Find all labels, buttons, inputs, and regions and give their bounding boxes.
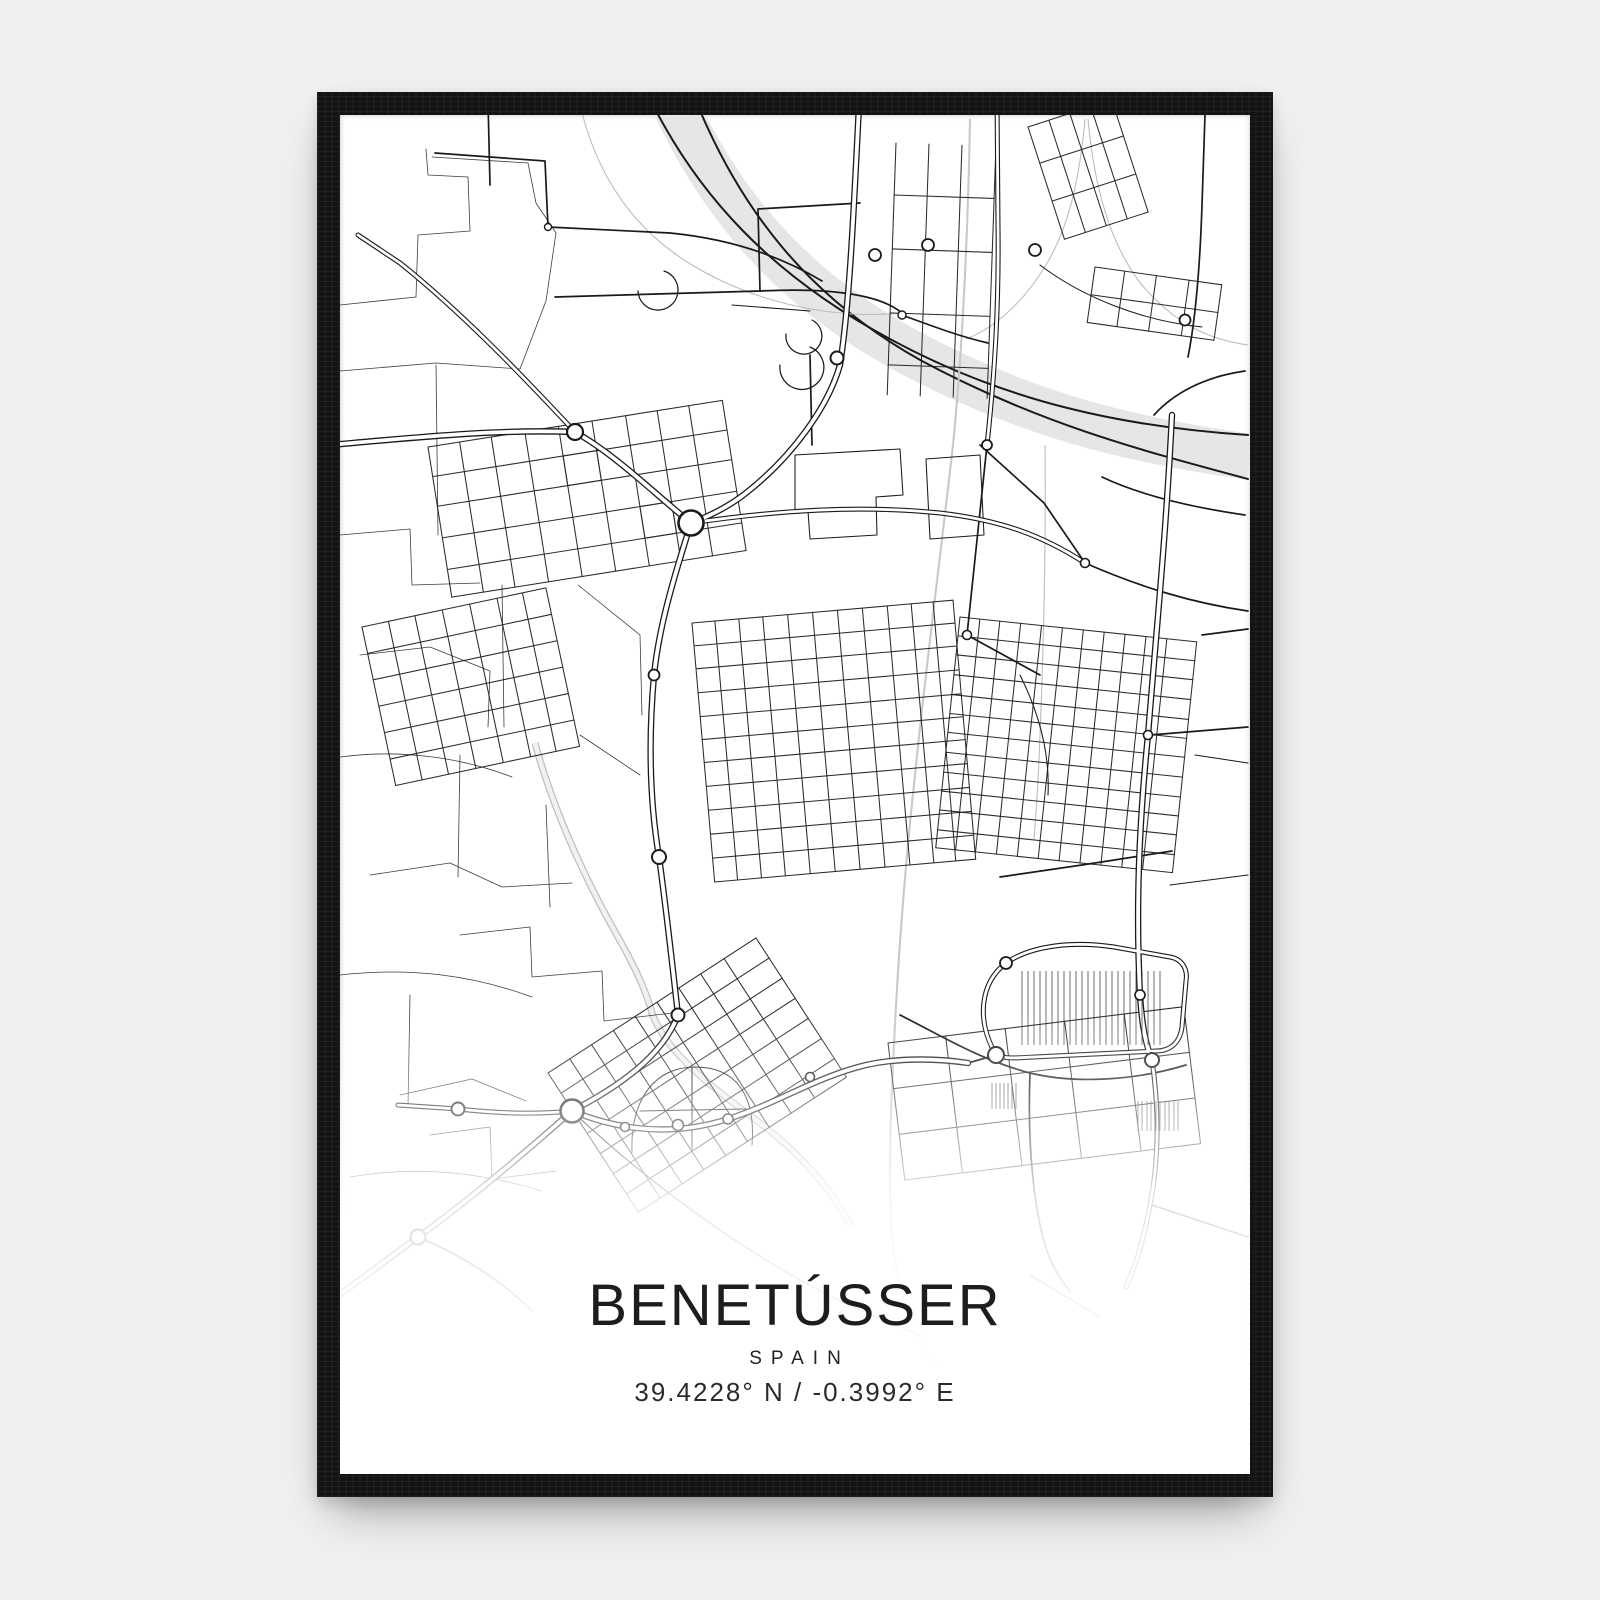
poster-frame: BENETÚSSER SPAIN 39.4228° N / -0.3992° E bbox=[317, 92, 1273, 1497]
roundabout-node bbox=[567, 424, 583, 440]
roundabout-node bbox=[831, 352, 844, 365]
roundabout-node bbox=[1000, 957, 1012, 969]
roundabout-node bbox=[649, 670, 660, 681]
roundabout-node bbox=[1029, 244, 1041, 256]
street-grid-northwest bbox=[428, 400, 746, 597]
street-grid-town-center bbox=[692, 600, 976, 882]
roundabout-node bbox=[679, 511, 704, 536]
roundabout-node bbox=[922, 239, 934, 251]
poster-paper: BENETÚSSER SPAIN 39.4228° N / -0.3992° E bbox=[340, 115, 1250, 1474]
street-grid-west bbox=[362, 588, 580, 786]
page-background: BENETÚSSER SPAIN 39.4228° N / -0.3992° E bbox=[0, 0, 1600, 1600]
street-grid-northeast bbox=[1087, 267, 1222, 340]
street-grid-north-tilted bbox=[1028, 115, 1148, 239]
roundabout-node bbox=[869, 249, 881, 261]
city-map-graphic bbox=[340, 115, 1250, 1474]
river-band bbox=[638, 115, 1250, 479]
roundabout-node bbox=[652, 850, 666, 864]
bottom-fade-overlay bbox=[340, 1010, 1250, 1474]
